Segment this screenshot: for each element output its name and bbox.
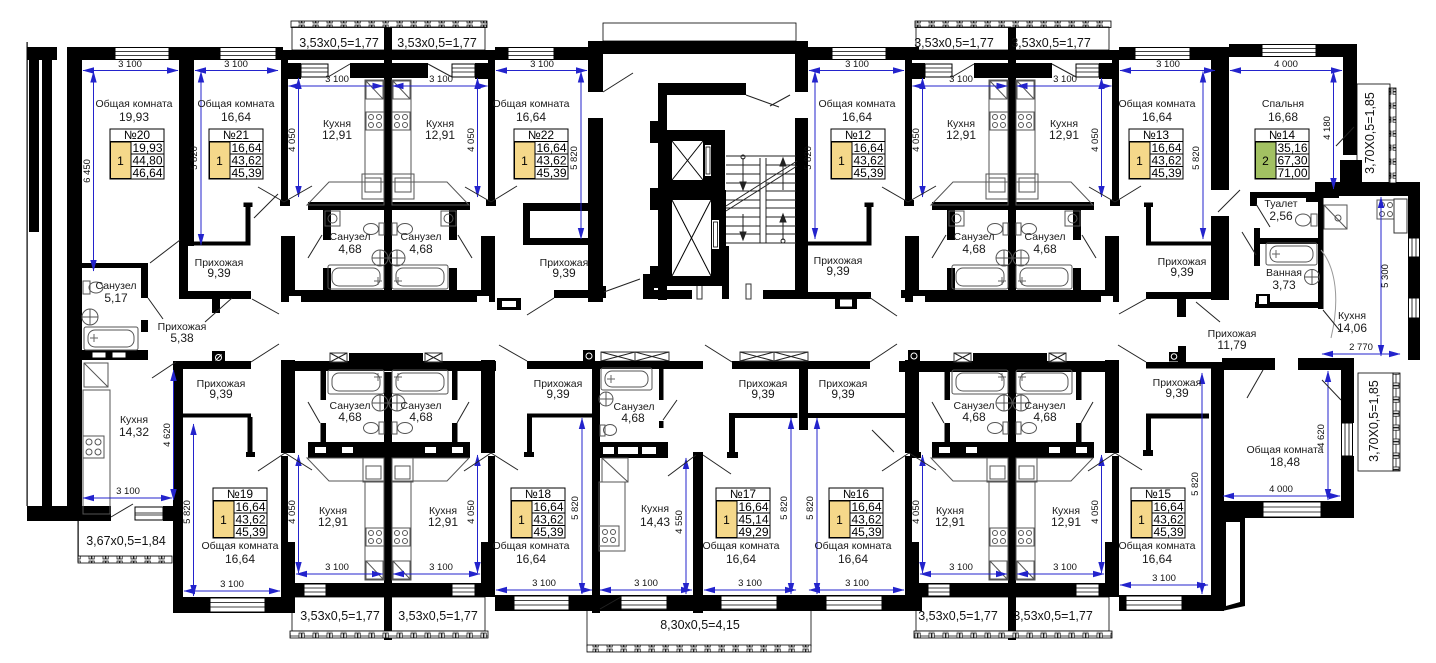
svg-text:3,53x0,5=1,77: 3,53x0,5=1,77 bbox=[1013, 609, 1093, 623]
svg-text:№17: №17 bbox=[730, 487, 757, 501]
svg-text:3,70X0,5=1,85: 3,70X0,5=1,85 bbox=[1363, 92, 1377, 174]
svg-text:16,64: 16,64 bbox=[838, 552, 868, 566]
svg-text:12,91: 12,91 bbox=[428, 515, 458, 529]
svg-text:4 620: 4 620 bbox=[162, 423, 173, 447]
svg-text:5,17: 5,17 bbox=[104, 291, 128, 305]
svg-text:5 820: 5 820 bbox=[779, 496, 790, 520]
svg-text:5 820: 5 820 bbox=[1191, 146, 1202, 170]
svg-text:№18: №18 bbox=[525, 487, 552, 501]
svg-text:12,91: 12,91 bbox=[935, 515, 965, 529]
svg-text:45,39: 45,39 bbox=[851, 525, 881, 539]
svg-text:4 050: 4 050 bbox=[466, 128, 477, 152]
svg-text:3,53x0,5=1,77: 3,53x0,5=1,77 bbox=[1011, 36, 1091, 50]
svg-text:9,39: 9,39 bbox=[209, 387, 233, 401]
svg-text:3 100: 3 100 bbox=[845, 578, 869, 589]
svg-text:3 100: 3 100 bbox=[949, 74, 973, 85]
svg-text:Общая комната: Общая комната bbox=[493, 98, 570, 110]
svg-text:3,53x0,5=1,77: 3,53x0,5=1,77 bbox=[918, 609, 998, 623]
svg-text:Общая комната: Общая комната bbox=[96, 98, 173, 110]
svg-text:12,91: 12,91 bbox=[946, 128, 976, 142]
svg-text:5 820: 5 820 bbox=[569, 146, 580, 170]
svg-text:9,39: 9,39 bbox=[751, 387, 775, 401]
svg-text:5,38: 5,38 bbox=[170, 331, 194, 345]
svg-text:3,53x0,5=1,77: 3,53x0,5=1,77 bbox=[914, 36, 994, 50]
svg-text:45,39: 45,39 bbox=[235, 525, 265, 539]
svg-text:9,39: 9,39 bbox=[1170, 265, 1194, 279]
svg-text:№22: №22 bbox=[528, 128, 555, 142]
svg-text:3,70X0,5=1,85: 3,70X0,5=1,85 bbox=[1367, 380, 1381, 462]
svg-text:71,00: 71,00 bbox=[1277, 166, 1307, 180]
svg-text:8,30x0,5=4,15: 8,30x0,5=4,15 bbox=[660, 618, 740, 632]
svg-text:4 050: 4 050 bbox=[1090, 500, 1101, 524]
svg-text:3 100: 3 100 bbox=[532, 578, 556, 589]
svg-text:12,91: 12,91 bbox=[318, 515, 348, 529]
svg-text:9,39: 9,39 bbox=[826, 264, 850, 278]
svg-text:4 550: 4 550 bbox=[674, 510, 685, 534]
svg-text:Кухня: Кухня bbox=[641, 503, 669, 515]
svg-text:9,39: 9,39 bbox=[207, 266, 231, 280]
svg-text:12,91: 12,91 bbox=[425, 128, 455, 142]
svg-text:Общая комната: Общая комната bbox=[198, 98, 275, 110]
svg-text:5 820: 5 820 bbox=[182, 500, 193, 524]
svg-text:№20: №20 bbox=[124, 128, 151, 142]
svg-text:3 100: 3 100 bbox=[738, 578, 762, 589]
svg-text:4,68: 4,68 bbox=[621, 411, 645, 425]
svg-text:№15: №15 bbox=[1145, 487, 1172, 501]
svg-text:3 100: 3 100 bbox=[325, 562, 349, 573]
svg-text:12,91: 12,91 bbox=[1049, 128, 1079, 142]
svg-text:45,39: 45,39 bbox=[533, 525, 563, 539]
svg-text:4 050: 4 050 bbox=[911, 128, 922, 152]
svg-text:6 450: 6 450 bbox=[82, 159, 93, 183]
svg-text:18,48: 18,48 bbox=[1270, 455, 1300, 469]
svg-text:16,68: 16,68 bbox=[1268, 110, 1298, 124]
svg-text:Общая комната: Общая комната bbox=[819, 98, 896, 110]
svg-text:3 100: 3 100 bbox=[1152, 573, 1176, 584]
svg-text:3 100: 3 100 bbox=[220, 579, 244, 590]
svg-text:1: 1 bbox=[1136, 154, 1143, 168]
svg-text:45,39: 45,39 bbox=[853, 166, 883, 180]
svg-text:4 050: 4 050 bbox=[911, 500, 922, 524]
svg-text:Общая комната: Общая комната bbox=[1119, 98, 1196, 110]
svg-text:№16: №16 bbox=[843, 487, 870, 501]
svg-text:3 100: 3 100 bbox=[325, 74, 349, 85]
svg-text:3 100: 3 100 bbox=[634, 578, 658, 589]
svg-text:16,64: 16,64 bbox=[1142, 110, 1172, 124]
svg-text:16,64: 16,64 bbox=[225, 552, 255, 566]
svg-text:1: 1 bbox=[1138, 513, 1145, 527]
svg-text:1: 1 bbox=[518, 513, 525, 527]
svg-text:5 820: 5 820 bbox=[1190, 472, 1201, 496]
svg-text:4 050: 4 050 bbox=[466, 500, 477, 524]
svg-text:Общая комната: Общая комната bbox=[202, 540, 279, 552]
svg-text:3,67x0,5=1,84: 3,67x0,5=1,84 bbox=[86, 534, 166, 548]
svg-text:16,64: 16,64 bbox=[726, 552, 756, 566]
svg-text:4,68: 4,68 bbox=[962, 242, 986, 256]
svg-text:46,64: 46,64 bbox=[132, 166, 162, 180]
svg-text:3 100: 3 100 bbox=[530, 59, 554, 70]
svg-text:3,73: 3,73 bbox=[1272, 278, 1296, 292]
svg-text:16,64: 16,64 bbox=[221, 110, 251, 124]
svg-text:45,39: 45,39 bbox=[231, 166, 261, 180]
svg-text:2 770: 2 770 bbox=[1349, 342, 1373, 353]
svg-text:9,39: 9,39 bbox=[1165, 386, 1189, 400]
svg-text:16,64: 16,64 bbox=[516, 552, 546, 566]
svg-text:45,39: 45,39 bbox=[1151, 166, 1181, 180]
svg-text:1: 1 bbox=[521, 154, 528, 168]
svg-text:11,79: 11,79 bbox=[1217, 338, 1246, 352]
svg-text:3 100: 3 100 bbox=[224, 59, 248, 70]
svg-text:3,53x0,5=1,77: 3,53x0,5=1,77 bbox=[299, 36, 379, 50]
svg-text:№12: №12 bbox=[845, 128, 872, 142]
svg-text:5 820: 5 820 bbox=[570, 496, 581, 520]
svg-text:3,53x0,5=1,77: 3,53x0,5=1,77 bbox=[398, 609, 478, 623]
svg-text:14,43: 14,43 bbox=[640, 515, 670, 529]
svg-text:3,53x0,5=1,77: 3,53x0,5=1,77 bbox=[300, 609, 380, 623]
svg-text:4 050: 4 050 bbox=[1090, 128, 1101, 152]
svg-text:2: 2 bbox=[1262, 154, 1269, 168]
svg-text:2,56: 2,56 bbox=[1269, 209, 1293, 223]
svg-text:Спальня: Спальня bbox=[1262, 98, 1304, 110]
svg-text:3 100: 3 100 bbox=[1156, 59, 1180, 70]
svg-text:№21: №21 bbox=[223, 128, 250, 142]
svg-text:№19: №19 bbox=[227, 487, 254, 501]
svg-text:4,68: 4,68 bbox=[338, 242, 362, 256]
svg-text:5 300: 5 300 bbox=[1380, 264, 1391, 288]
svg-text:4,68: 4,68 bbox=[338, 410, 362, 424]
svg-text:1: 1 bbox=[838, 154, 845, 168]
svg-text:4 000: 4 000 bbox=[1269, 484, 1293, 495]
svg-text:1: 1 bbox=[117, 154, 124, 168]
svg-text:3,53x0,5=1,77: 3,53x0,5=1,77 bbox=[397, 36, 477, 50]
svg-text:49,29: 49,29 bbox=[738, 525, 768, 539]
svg-text:4,68: 4,68 bbox=[409, 410, 433, 424]
svg-text:1: 1 bbox=[216, 154, 223, 168]
svg-text:Общая комната: Общая комната bbox=[1119, 540, 1196, 552]
svg-text:12,91: 12,91 bbox=[322, 128, 352, 142]
svg-text:4 050: 4 050 bbox=[287, 128, 298, 152]
svg-text:16,64: 16,64 bbox=[1142, 552, 1172, 566]
svg-text:14,06: 14,06 bbox=[1337, 321, 1367, 335]
svg-text:1: 1 bbox=[836, 513, 843, 527]
svg-text:3 100: 3 100 bbox=[1053, 562, 1077, 573]
svg-text:№13: №13 bbox=[1143, 128, 1170, 142]
svg-text:3 100: 3 100 bbox=[118, 59, 142, 70]
svg-text:4,68: 4,68 bbox=[1033, 410, 1057, 424]
svg-text:Общая комната: Общая комната bbox=[703, 540, 780, 552]
svg-text:45,39: 45,39 bbox=[1153, 525, 1183, 539]
svg-text:9,39: 9,39 bbox=[546, 387, 570, 401]
svg-text:9,39: 9,39 bbox=[831, 387, 855, 401]
svg-text:16,64: 16,64 bbox=[516, 110, 546, 124]
svg-text:3 100: 3 100 bbox=[429, 562, 453, 573]
svg-text:9,39: 9,39 bbox=[552, 266, 576, 280]
svg-text:5 820: 5 820 bbox=[805, 496, 816, 520]
svg-text:4,68: 4,68 bbox=[962, 410, 986, 424]
svg-text:4 000: 4 000 bbox=[1274, 59, 1298, 70]
svg-text:4 180: 4 180 bbox=[1322, 116, 1333, 140]
svg-text:4,68: 4,68 bbox=[1033, 242, 1057, 256]
svg-text:1: 1 bbox=[723, 513, 730, 527]
svg-text:Общая комната: Общая комната bbox=[815, 540, 892, 552]
svg-text:45,39: 45,39 bbox=[536, 166, 566, 180]
svg-text:4,68: 4,68 bbox=[409, 242, 433, 256]
svg-text:Общая комната: Общая комната bbox=[493, 540, 570, 552]
svg-text:16,64: 16,64 bbox=[842, 110, 872, 124]
svg-text:1: 1 bbox=[220, 513, 227, 527]
svg-text:3 100: 3 100 bbox=[845, 59, 869, 70]
svg-text:3 100: 3 100 bbox=[949, 562, 973, 573]
svg-text:№14: №14 bbox=[1269, 128, 1296, 142]
svg-text:5 820: 5 820 bbox=[189, 146, 200, 170]
svg-text:14,32: 14,32 bbox=[119, 425, 149, 439]
svg-text:19,93: 19,93 bbox=[119, 110, 149, 124]
svg-text:4 050: 4 050 bbox=[287, 500, 298, 524]
svg-text:12,91: 12,91 bbox=[1051, 515, 1081, 529]
svg-text:3 100: 3 100 bbox=[116, 486, 140, 497]
svg-text:5 820: 5 820 bbox=[803, 146, 814, 170]
